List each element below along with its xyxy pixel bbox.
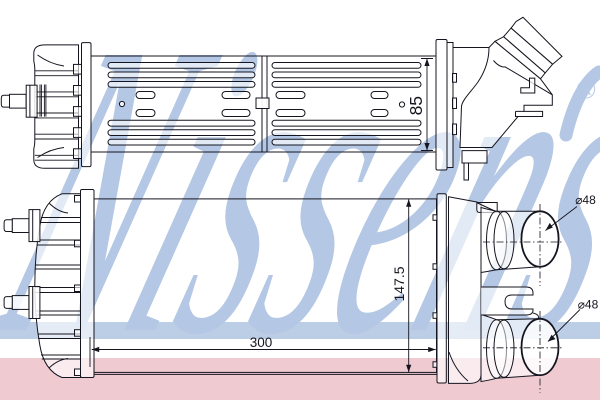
svg-text:300: 300 [250, 335, 273, 350]
svg-text:⌀48: ⌀48 [575, 193, 596, 207]
svg-text:85: 85 [406, 96, 426, 115]
svg-text:⌀48: ⌀48 [578, 298, 599, 312]
svg-text:®: ® [576, 74, 597, 104]
svg-text:147.5: 147.5 [391, 266, 407, 301]
